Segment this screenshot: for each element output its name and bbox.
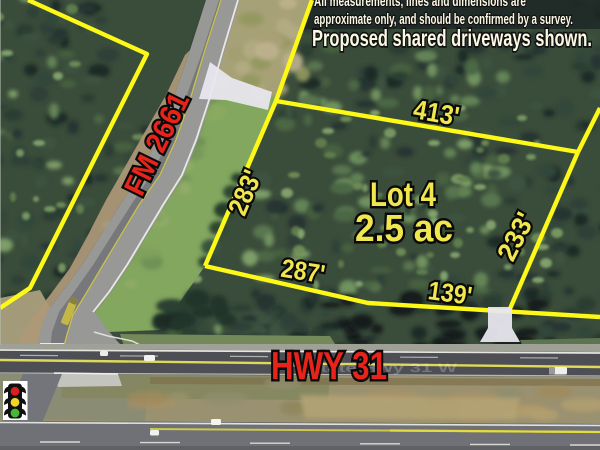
svg-text:Proposed shared driveways show: Proposed shared driveways shown. xyxy=(312,25,592,51)
svg-text:139': 139' xyxy=(426,275,474,311)
svg-text:All measurements, lines and di: All measurements, lines and dimensions a… xyxy=(314,0,526,10)
svg-text:HWY 31: HWY 31 xyxy=(271,345,387,388)
svg-text:2.5 ac: 2.5 ac xyxy=(355,208,453,250)
